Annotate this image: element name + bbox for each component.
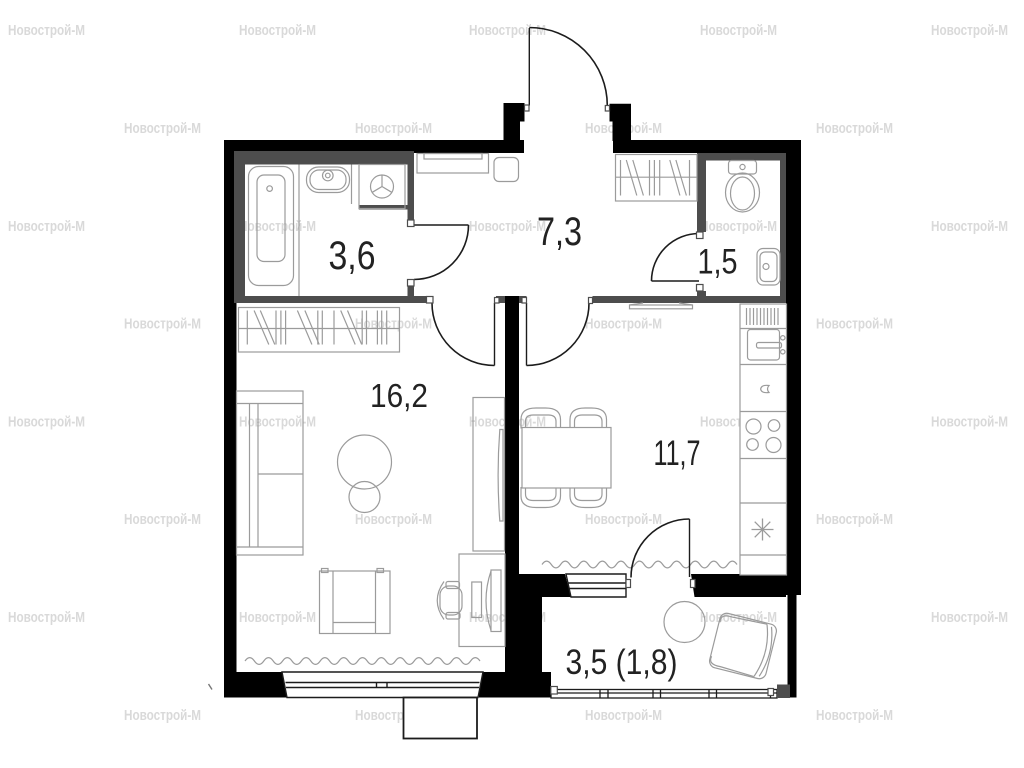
svg-text:16,2: 16,2	[370, 378, 428, 415]
svg-text:Новострой-М: Новострой-М	[8, 414, 85, 430]
svg-text:Новострой-М: Новострой-М	[124, 121, 201, 137]
svg-text:Новострой-М: Новострой-М	[355, 121, 432, 137]
svg-text:Новострой-М: Новострой-М	[124, 317, 201, 333]
svg-text:Новострой-М: Новострой-М	[8, 23, 85, 39]
svg-text:Новострой-М: Новострой-М	[931, 23, 1008, 39]
svg-text:Новострой-М: Новострой-М	[931, 219, 1008, 235]
svg-text:Новострой-М: Новострой-М	[239, 414, 316, 430]
svg-text:Новострой-М: Новострой-М	[585, 708, 662, 724]
svg-text:11,7: 11,7	[654, 434, 701, 473]
svg-text:Новострой-М: Новострой-М	[585, 512, 662, 528]
svg-text:Новострой-М: Новострой-М	[816, 121, 893, 137]
svg-text:Новострой-М: Новострой-М	[469, 23, 546, 39]
svg-text:Новострой-М: Новострой-М	[124, 512, 201, 528]
svg-text:7,3: 7,3	[537, 210, 582, 254]
svg-text:Новострой-М: Новострой-М	[355, 512, 432, 528]
svg-text:Новострой-М: Новострой-М	[700, 219, 777, 235]
svg-text:3,5 (1,8): 3,5 (1,8)	[566, 643, 678, 682]
svg-text:Новострой-М: Новострой-М	[124, 708, 201, 724]
svg-text:Новострой-М: Новострой-М	[585, 317, 662, 333]
svg-text:Новострой-М: Новострой-М	[816, 317, 893, 333]
svg-text:Новострой-М: Новострой-М	[239, 219, 316, 235]
svg-text:Новострой-М: Новострой-М	[931, 610, 1008, 626]
svg-text:3,6: 3,6	[329, 234, 376, 278]
svg-text:Новострой-М: Новострой-М	[700, 23, 777, 39]
svg-text:Новострой-М: Новострой-М	[8, 219, 85, 235]
svg-text:Новострой-М: Новострой-М	[469, 219, 546, 235]
svg-text:Новострой-М: Новострой-М	[816, 512, 893, 528]
svg-text:1,5: 1,5	[698, 242, 738, 282]
svg-text:Новострой-М: Новострой-М	[816, 708, 893, 724]
svg-text:Новострой-М: Новострой-М	[8, 610, 85, 626]
svg-text:Новострой-М: Новострой-М	[239, 610, 316, 626]
svg-text:Новострой-М: Новострой-М	[931, 414, 1008, 430]
svg-text:Новострой-М: Новострой-М	[239, 23, 316, 39]
